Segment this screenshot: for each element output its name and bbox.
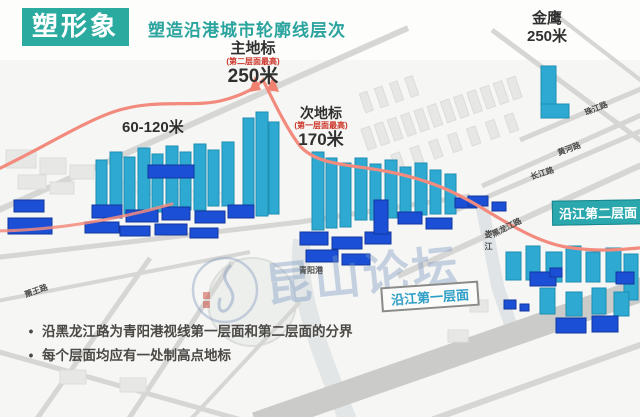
logo-badge: 塑形象	[22, 8, 129, 46]
main-landmark-name: 主地标	[226, 40, 279, 57]
slide-canvas: 昆山论坛 塑形象 塑造沿港城市轮廓线层次 主地标 (第二层面最高) 250米 次…	[0, 0, 640, 417]
secondary-landmark-note: (第一层面最高)	[294, 121, 347, 130]
note-item-2: 每个层面均应有一处制高点地标	[20, 344, 600, 364]
jinying-name: 金鹰	[527, 10, 567, 28]
annotation-height-range: 60-120米	[122, 116, 184, 137]
annotation-jinying: 金鹰 250米	[527, 10, 567, 46]
secondary-landmark-height: 170米	[294, 130, 347, 149]
annotation-main-landmark: 主地标 (第二层面最高) 250米	[226, 40, 279, 87]
zone-second-layer-badge: 沿江第二层面	[552, 199, 640, 226]
main-landmark-note: (第二层面最高)	[226, 57, 279, 66]
page-title: 塑造沿港城市轮廓线层次	[148, 16, 346, 41]
annotation-secondary-landmark: 次地标 (第一层面最高) 170米	[294, 105, 347, 149]
jinying-height: 250米	[527, 28, 567, 46]
secondary-landmark-name: 次地标	[294, 105, 347, 121]
note-item-1: 沿黑龙江路为青阳港视线第一层面和第二层面的分界	[20, 320, 600, 340]
notes-list: 沿黑龙江路为青阳港视线第一层面和第二层面的分界 每个层面均应有一处制高点地标	[20, 320, 600, 368]
river-label-qingyanggang: 青阳港	[299, 265, 323, 276]
river-label-loujiang: 娄江	[483, 230, 494, 254]
main-landmark-height: 250米	[226, 66, 279, 87]
